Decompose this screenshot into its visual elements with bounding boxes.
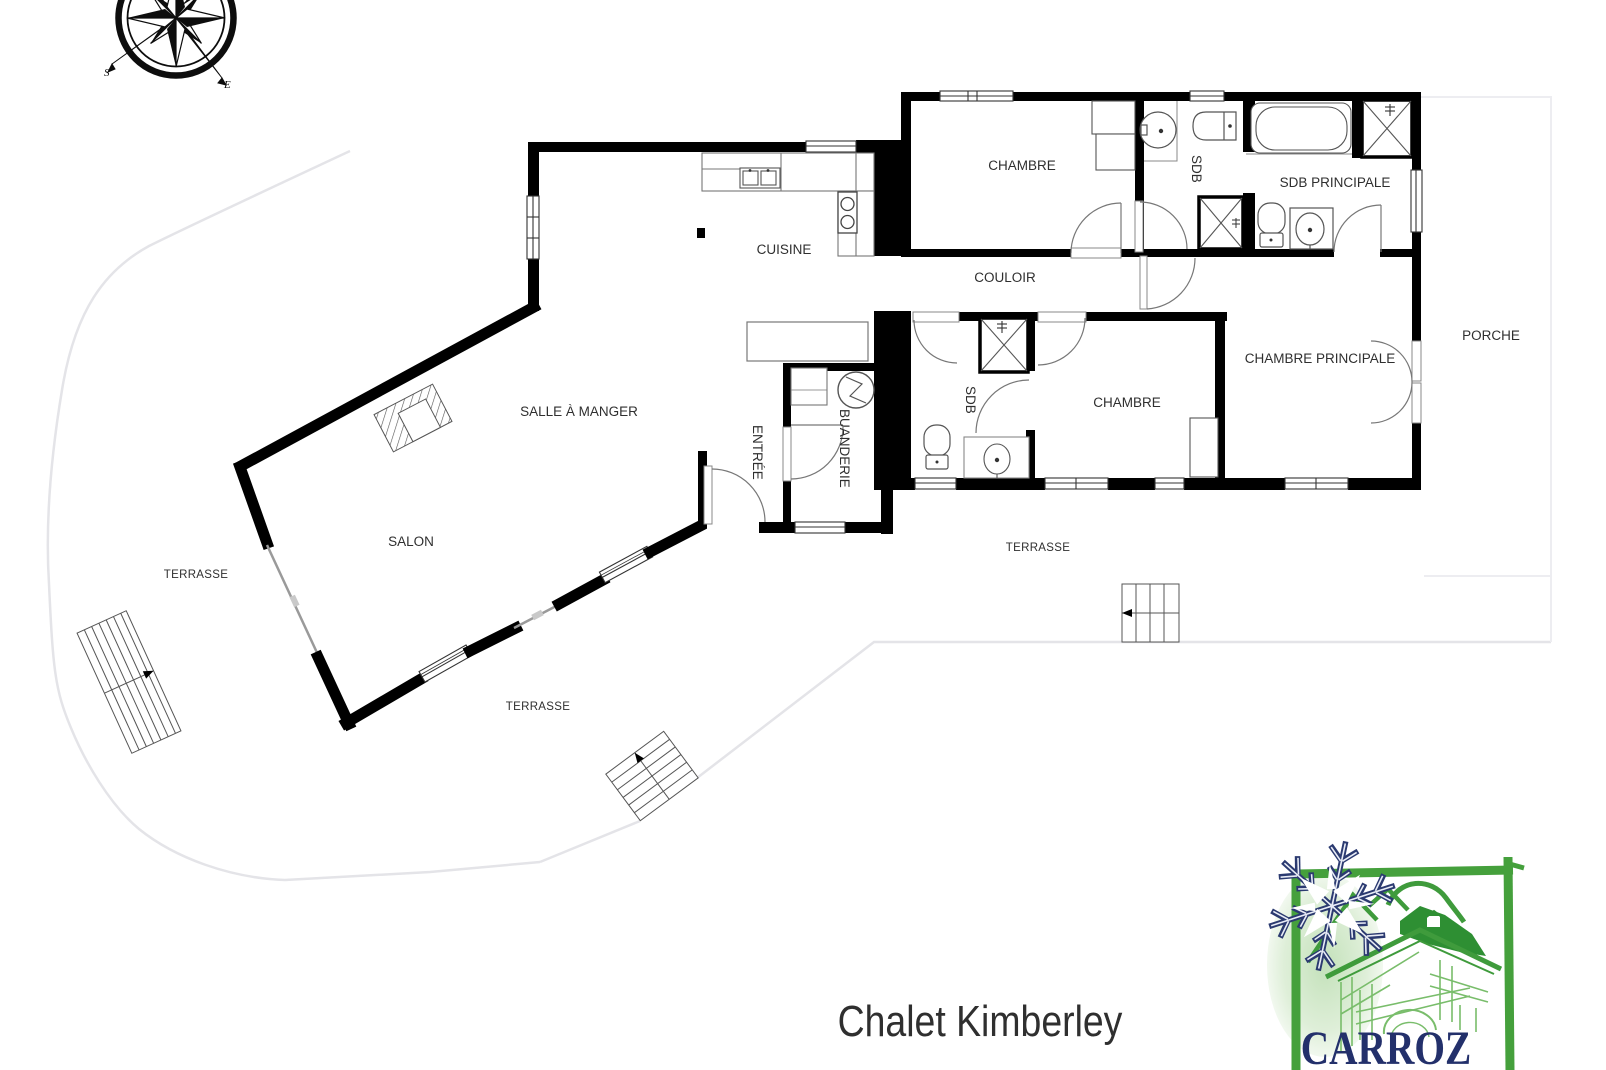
svg-text:PORCHE: PORCHE: [1462, 328, 1520, 343]
svg-text:CHAMBRE: CHAMBRE: [1093, 395, 1161, 410]
svg-text:COULOIR: COULOIR: [974, 270, 1036, 285]
svg-text:TERRASSE: TERRASSE: [1006, 542, 1070, 554]
svg-text:TERRASSE: TERRASSE: [506, 701, 570, 713]
svg-text:ENTRÉE: ENTRÉE: [750, 425, 765, 480]
svg-text:BUANDERIE: BUANDERIE: [837, 409, 852, 488]
svg-text:SALLE À MANGER: SALLE À MANGER: [520, 404, 638, 419]
svg-text:SDB PRINCIPALE: SDB PRINCIPALE: [1280, 175, 1391, 190]
svg-text:S: S: [104, 67, 110, 79]
svg-text:Chalet Kimberley: Chalet Kimberley: [838, 996, 1123, 1046]
svg-text:SALON: SALON: [388, 534, 434, 549]
svg-text:E: E: [223, 79, 231, 91]
svg-text:CHAMBRE: CHAMBRE: [988, 158, 1056, 173]
svg-text:SDB: SDB: [963, 386, 978, 414]
svg-text:CUISINE: CUISINE: [757, 242, 812, 257]
svg-text:SDB: SDB: [1189, 155, 1204, 183]
svg-text:TERRASSE: TERRASSE: [164, 569, 228, 581]
svg-text:CARROZ: CARROZ: [1301, 1022, 1472, 1070]
svg-text:CHAMBRE PRINCIPALE: CHAMBRE PRINCIPALE: [1245, 351, 1396, 366]
